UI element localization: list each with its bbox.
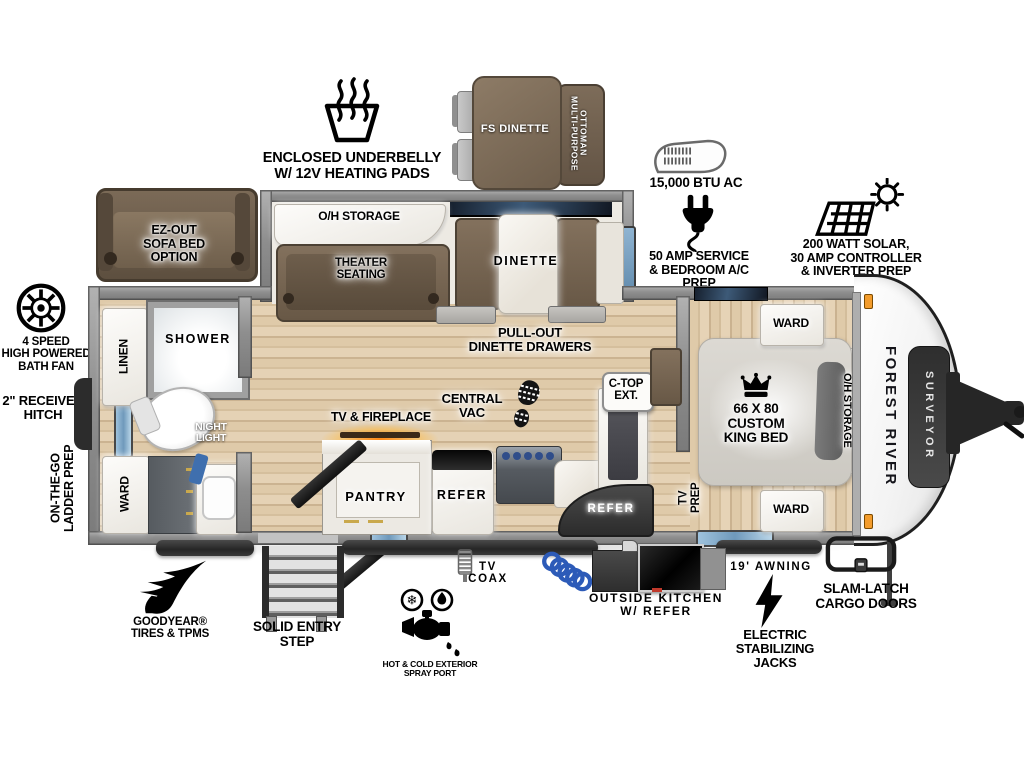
callout-entry-step: SOLID ENTRY STEP bbox=[249, 620, 345, 649]
front-body-wall bbox=[852, 292, 861, 536]
shower-label: SHOWER bbox=[152, 333, 244, 347]
ctop-ext-label: C-TOP EXT. bbox=[602, 378, 650, 403]
ctop-cabinet-inset bbox=[608, 404, 638, 480]
callout-awning: 19' AWNING bbox=[718, 561, 824, 573]
lightning-bolt-icon bbox=[752, 574, 788, 628]
callout-outside-kitchen: OUTSIDE KITCHEN W/ REFER bbox=[580, 592, 732, 618]
outside-kitchen-tv bbox=[638, 544, 704, 592]
linen-label: LINEN bbox=[104, 312, 144, 400]
pantry-handle bbox=[368, 520, 383, 523]
theater-seating-label: THEATER SEATING bbox=[301, 257, 421, 282]
marker-light bbox=[864, 294, 873, 309]
refer-label: REFER bbox=[432, 489, 492, 503]
pantry-label: PANTRY bbox=[328, 490, 424, 504]
outside-kitchen-cabinet bbox=[592, 550, 640, 592]
callout-spray-port: HOT & COLD EXTERIOR SPRAY PORT bbox=[376, 660, 484, 678]
central-vac-label: CENTRAL VAC bbox=[428, 392, 516, 420]
ez-sofa-cupholder bbox=[231, 252, 244, 265]
pantry-counter-top bbox=[322, 440, 430, 454]
ac-unit-icon bbox=[650, 136, 730, 178]
bath-partition-upper bbox=[238, 296, 252, 378]
fs-dinette-label: FS DINETTE bbox=[474, 124, 556, 136]
bath-fan-icon bbox=[15, 282, 67, 334]
brand-make: FOREST RIVER bbox=[878, 328, 902, 504]
callout-sofa-option: EZ-OUT SOFA BED OPTION bbox=[126, 224, 222, 265]
heating-pads-icon bbox=[314, 76, 390, 150]
bath-partition-lower bbox=[236, 452, 252, 533]
callout-bath-fan: 4 SPEED HIGH POWERED BATH FAN bbox=[0, 336, 92, 373]
ottoman-label: MULTI-PURPOSE OTTOMAN bbox=[557, 86, 600, 180]
spray-port-icon: ❄ bbox=[398, 588, 462, 658]
theater-cupholder bbox=[428, 293, 439, 304]
callout-stab-jacks: ELECTRIC STABILIZING JACKS bbox=[722, 628, 828, 670]
callout-cargo-doors: SLAM-LATCH CARGO DOORS bbox=[808, 582, 924, 611]
dinette-drawer bbox=[436, 306, 496, 324]
callout-amp-service: 50 AMP SERVICE & BEDROOM A/C PREP bbox=[634, 250, 764, 291]
night-light-label: NIGHT LIGHT bbox=[180, 422, 242, 445]
bedroom-dresser bbox=[650, 348, 682, 406]
ward-bottom-label: WARD bbox=[760, 503, 822, 516]
vanity-handle bbox=[186, 512, 193, 515]
bath-ward-label: WARD bbox=[104, 460, 146, 528]
callout-underbelly: ENCLOSED UNDERBELLY W/ 12V HEATING PADS bbox=[262, 151, 442, 182]
callout-goodyear: GOODYEAR® TIRES & TPMS bbox=[120, 616, 220, 641]
pantry-handle bbox=[344, 520, 359, 523]
outside-kitchen-faucet bbox=[622, 540, 638, 552]
dinette-end-console bbox=[596, 222, 624, 304]
awning-rail bbox=[156, 540, 254, 556]
ward-top-label: WARD bbox=[760, 317, 822, 330]
theater-cupholder bbox=[283, 293, 294, 304]
callout-btu-ac: 15,000 BTU AC bbox=[638, 176, 754, 191]
stove-burner bbox=[502, 452, 510, 460]
svg-text:❄: ❄ bbox=[407, 594, 418, 609]
outside-kitchen-unit bbox=[592, 544, 724, 592]
tv-prep-label: TV PREP bbox=[674, 472, 706, 524]
refrigerator-top bbox=[432, 450, 492, 470]
outside-refer-label: REFER bbox=[578, 503, 644, 515]
ez-sofa-cupholder bbox=[104, 252, 117, 265]
pullout-drawers-label: PULL-OUT DINETTE DRAWERS bbox=[440, 326, 620, 354]
goodyear-wingfoot-icon bbox=[138, 558, 208, 618]
marker-light bbox=[864, 514, 873, 529]
fireplace-tv bbox=[340, 432, 420, 438]
dinette-label: DINETTE bbox=[468, 255, 584, 269]
crown-icon bbox=[740, 372, 772, 399]
rv-floorplan-diagram: ENCLOSED UNDERBELLY W/ 12V HEATING PADS … bbox=[0, 0, 1024, 768]
solar-panel-icon bbox=[810, 178, 910, 240]
entry-steps bbox=[262, 546, 344, 618]
awning-rail bbox=[716, 540, 822, 554]
shower-pan bbox=[154, 308, 242, 392]
bath-sink bbox=[202, 476, 236, 520]
oh-storage-label: O/H STORAGE bbox=[280, 210, 438, 223]
rear-receiver-hitch bbox=[74, 378, 92, 450]
cargo-door-icon bbox=[824, 534, 898, 576]
callout-tv-coax: TV COAX bbox=[462, 561, 514, 586]
hitch-tongue bbox=[946, 368, 1024, 458]
callout-solar: 200 WATT SOLAR, 30 AMP CONTROLLER & INVE… bbox=[786, 238, 926, 279]
brand-model: SURVEYOR bbox=[908, 350, 948, 482]
tv-fireplace-label: TV & FIREPLACE bbox=[318, 411, 444, 425]
power-plug-icon bbox=[676, 194, 720, 252]
living-slide-top-wall bbox=[260, 190, 634, 202]
bedroom-top-window bbox=[694, 287, 768, 301]
vanity-handle bbox=[186, 490, 193, 493]
dinette-drawer bbox=[548, 306, 606, 323]
king-bed-label: 66 X 80 CUSTOM KING BED bbox=[706, 402, 806, 446]
